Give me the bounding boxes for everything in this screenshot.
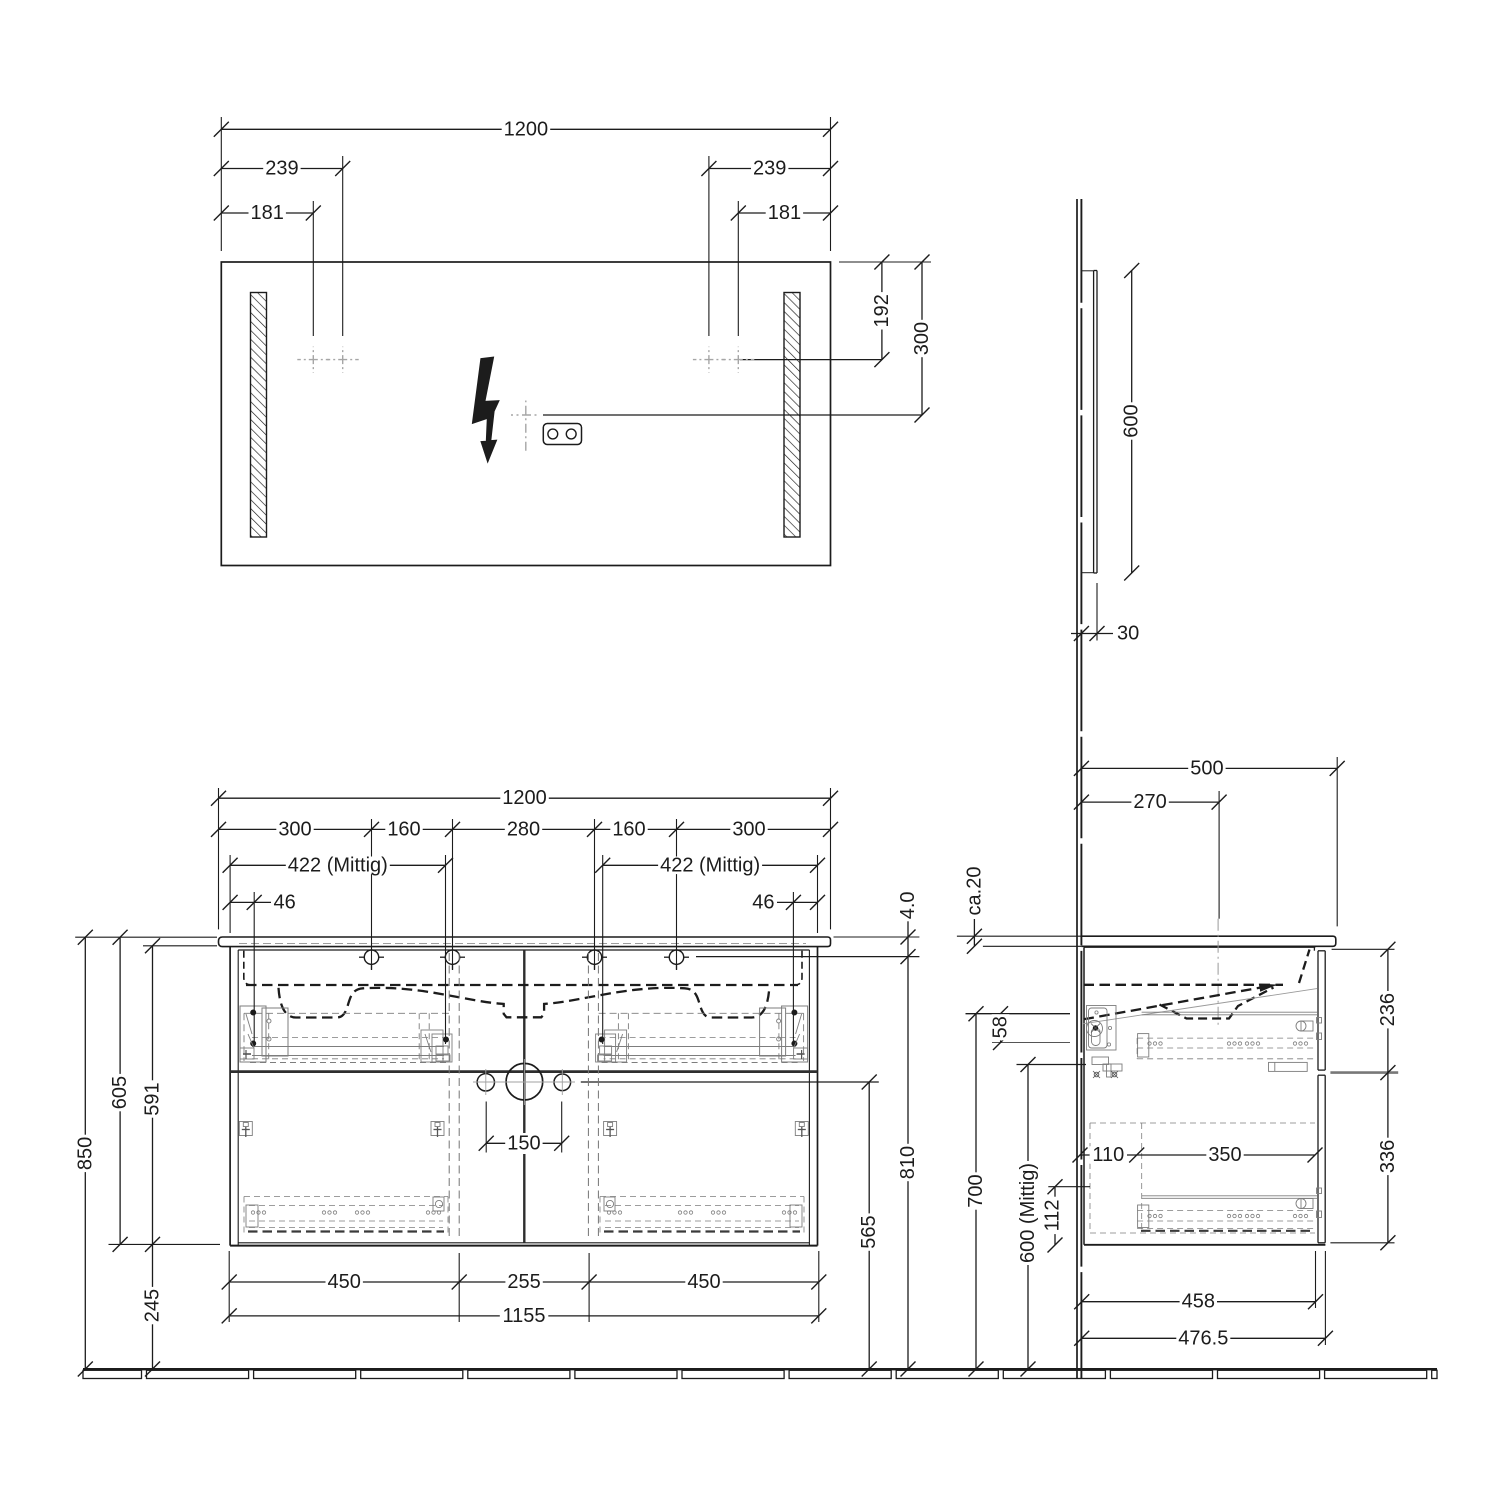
svg-text:476.5: 476.5	[1178, 1327, 1228, 1349]
svg-text:300: 300	[278, 818, 311, 840]
svg-text:458: 458	[1182, 1291, 1215, 1313]
svg-text:160: 160	[612, 818, 645, 840]
svg-text:270: 270	[1133, 791, 1166, 813]
svg-text:591: 591	[142, 1082, 164, 1115]
svg-text:336: 336	[1377, 1140, 1399, 1173]
svg-text:255: 255	[507, 1271, 540, 1293]
svg-text:1200: 1200	[504, 118, 549, 140]
svg-text:700: 700	[965, 1174, 987, 1207]
svg-text:239: 239	[265, 158, 298, 180]
svg-text:236: 236	[1377, 993, 1399, 1026]
svg-text:58: 58	[990, 1016, 1012, 1038]
svg-text:30: 30	[1117, 623, 1139, 645]
svg-text:422 (Mittig): 422 (Mittig)	[288, 854, 388, 876]
svg-text:181: 181	[251, 202, 284, 224]
svg-text:110: 110	[1092, 1144, 1124, 1166]
svg-text:4.0: 4.0	[897, 891, 919, 919]
svg-text:181: 181	[768, 202, 801, 224]
svg-text:150: 150	[507, 1132, 540, 1154]
svg-text:565: 565	[858, 1215, 880, 1248]
svg-text:300: 300	[732, 818, 765, 840]
svg-text:1155: 1155	[502, 1305, 545, 1327]
svg-text:810: 810	[897, 1146, 919, 1179]
svg-text:605: 605	[109, 1076, 131, 1109]
svg-text:500: 500	[1190, 757, 1223, 779]
svg-text:350: 350	[1208, 1144, 1241, 1166]
svg-text:450: 450	[687, 1271, 720, 1293]
svg-text:46: 46	[274, 891, 296, 913]
svg-text:46: 46	[752, 891, 774, 913]
svg-text:300: 300	[911, 322, 933, 355]
svg-text:600 (Mittig): 600 (Mittig)	[1017, 1163, 1039, 1263]
svg-text:850: 850	[74, 1137, 96, 1170]
svg-text:245: 245	[142, 1289, 164, 1322]
svg-text:192: 192	[871, 294, 893, 327]
svg-text:280: 280	[507, 818, 540, 840]
svg-text:422 (Mittig): 422 (Mittig)	[660, 854, 760, 876]
svg-text:600: 600	[1121, 404, 1143, 437]
svg-text:239: 239	[753, 158, 786, 180]
svg-text:160: 160	[387, 818, 420, 840]
svg-text:450: 450	[328, 1271, 361, 1293]
svg-text:1200: 1200	[502, 787, 547, 809]
svg-text:112: 112	[1041, 1199, 1063, 1231]
svg-text:ca.20: ca.20	[963, 867, 985, 916]
